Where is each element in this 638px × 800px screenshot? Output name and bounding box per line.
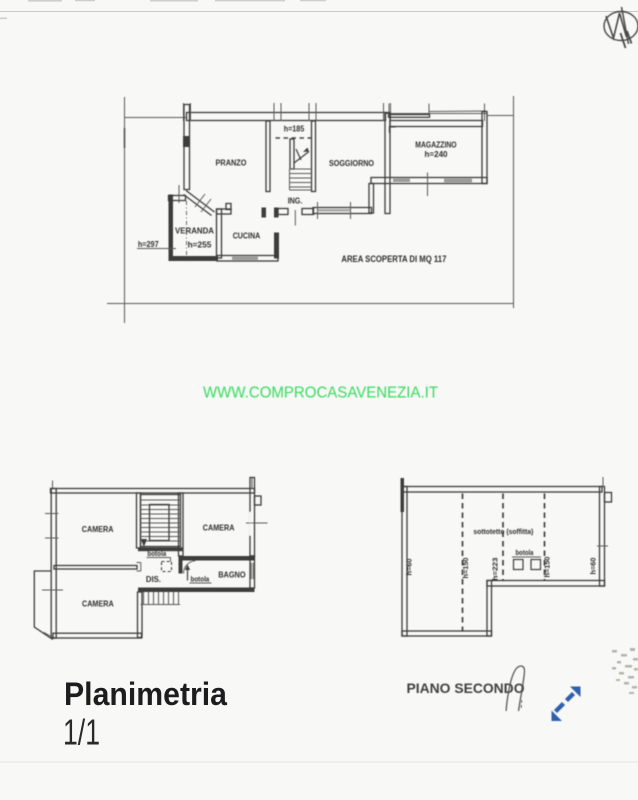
svg-text:sottotetto (soffitta): sottotetto (soffitta) [473,527,533,536]
svg-text:h=185: h=185 [284,124,305,133]
svg-text:CAMERA: CAMERA [203,522,235,532]
svg-text:PRANZO: PRANZO [216,158,247,168]
svg-text:CAMERA: CAMERA [82,599,114,609]
svg-text:ING.: ING. [288,196,303,206]
svg-text:h=240: h=240 [425,150,449,159]
svg-text:1/1: 1/1 [63,712,100,753]
svg-text:botola: botola [191,575,210,584]
svg-text:BAGNO: BAGNO [218,570,246,580]
svg-text:SOGGIORNO: SOGGIORNO [329,158,374,168]
svg-text:h=255: h=255 [188,241,212,250]
svg-text:h=297: h=297 [138,240,159,249]
svg-text:AREA SCOPERTA DI MQ 117: AREA SCOPERTA DI MQ 117 [341,254,446,264]
svg-text:VERANDA: VERANDA [175,226,214,236]
svg-text:PIANO SECONDO: PIANO SECONDO [407,680,525,696]
svg-text:CUCINA: CUCINA [233,231,261,241]
svg-text:WWW.COMPROCASAVENEZIA.IT: WWW.COMPROCASAVENEZIA.IT [203,385,438,402]
svg-text:botola: botola [516,548,535,557]
svg-text:h=150: h=150 [461,558,470,579]
svg-text:MAGAZZINO: MAGAZZINO [415,140,457,150]
svg-text:h=60: h=60 [589,558,598,575]
svg-text:h=150: h=150 [543,557,552,578]
svg-text:botola: botola [147,549,166,558]
svg-text:h=60: h=60 [405,559,414,576]
svg-text:Planimetria: Planimetria [64,676,228,712]
svg-text:DIS.: DIS. [146,574,161,584]
svg-text:CAMERA: CAMERA [82,524,114,534]
svg-text:h=223: h=223 [491,558,500,581]
